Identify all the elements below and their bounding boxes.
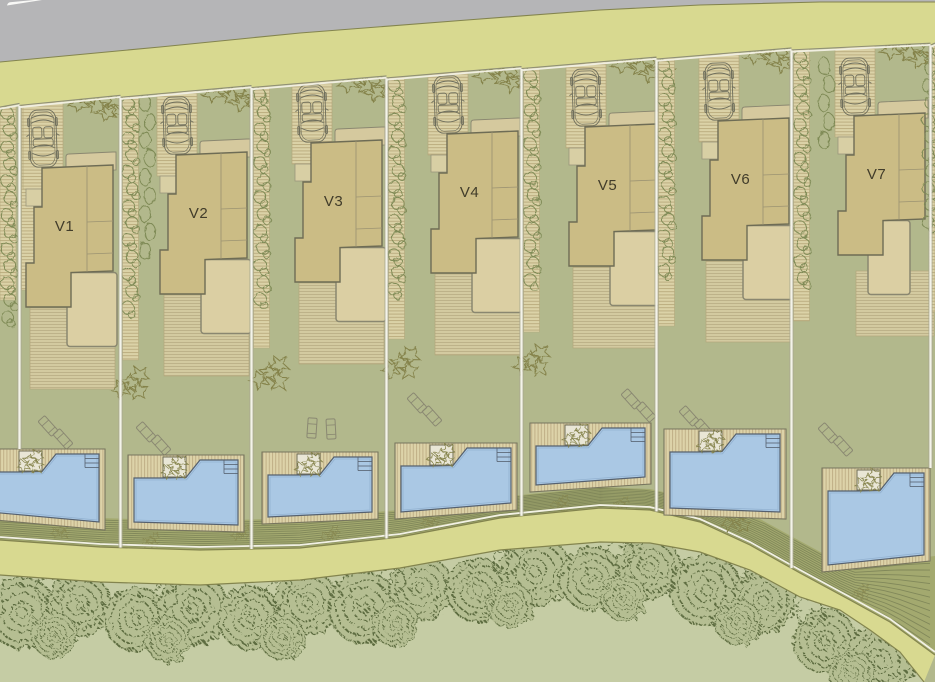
svg-text:V6: V6 <box>731 171 750 188</box>
svg-text:V3: V3 <box>324 193 343 210</box>
svg-text:V7: V7 <box>867 166 886 183</box>
svg-text:V1: V1 <box>55 218 74 235</box>
svg-text:V5: V5 <box>598 177 617 194</box>
svg-text:V2: V2 <box>189 205 208 222</box>
svg-text:V4: V4 <box>460 184 479 201</box>
